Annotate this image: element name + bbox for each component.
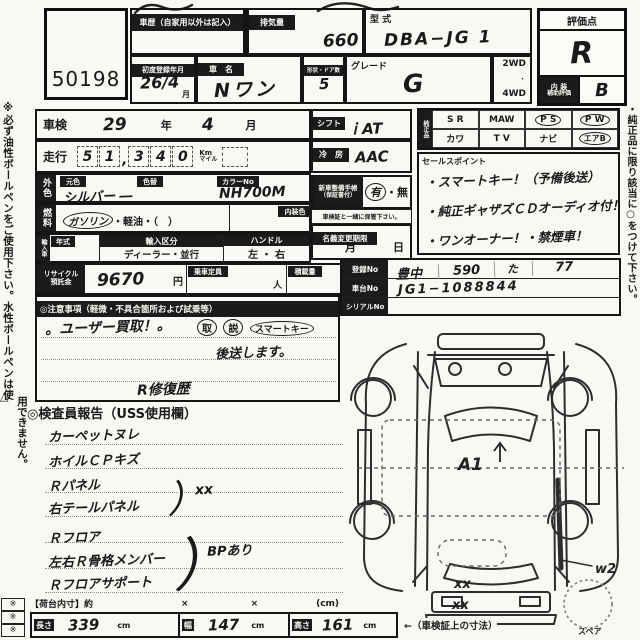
service-sep: ・ xyxy=(386,184,397,200)
year-unit: 年 xyxy=(161,117,172,133)
caution-circle-tori: 取 xyxy=(197,319,217,336)
cooling-value: AAC xyxy=(355,147,389,166)
length-value: 339 xyxy=(68,615,100,634)
import-header: 輸入車 xyxy=(37,235,50,261)
mileage-digit: 1 xyxy=(99,146,120,167)
recycle-row: リサイクル 預託金 9670 円 乗車定員 人 積載量 xyxy=(35,263,345,295)
recycle-unit: 円 xyxy=(173,273,183,288)
equip-airbag-circled: エアB xyxy=(579,132,611,145)
interior-rating-value: B xyxy=(595,79,609,100)
grade-cell: グレード G xyxy=(345,55,492,104)
chassis-no-row: 車台No JG1−1088844 xyxy=(342,279,619,298)
sales-point-3: ・ワンオーナー！・禁煙車！ xyxy=(425,225,588,250)
report-item-3: Ｒパネル xyxy=(48,474,101,495)
caution-circles: 取 説 スマートキー xyxy=(197,319,314,336)
cooling-label: 冷 房 xyxy=(313,148,349,162)
car-name-value: Nワン xyxy=(214,74,278,103)
mileage-digit: 0 xyxy=(172,146,193,167)
spare-label: スペア xyxy=(578,626,601,637)
grade-value: G xyxy=(403,69,425,99)
interior-color-label: 内装色 xyxy=(278,206,312,217)
service-book-label: 新車整備手帳 （保証書付） xyxy=(313,177,363,207)
corner-mark-box: ※ xyxy=(1,611,25,624)
shaken-label: 車検 xyxy=(43,116,67,133)
caution-repair-note: R修復歴 xyxy=(137,378,190,400)
sales-points-box: セールスポイント ・スマートキー！（予備後送） ・純正ギャザズＣＤオーディオ付！… xyxy=(417,152,620,255)
model-code-cell: 型 式 DBA−JG 1 xyxy=(364,8,532,55)
doors-label: 形状・ドア数 xyxy=(304,65,343,76)
rating-value-area: R xyxy=(540,31,624,75)
lot-number-box: 50198 xyxy=(44,8,128,100)
import-class-label: 輸入区分 xyxy=(100,235,223,247)
chassis-no-label: 車台No xyxy=(342,279,388,297)
fuel-options: ガソリン・軽油・（ ） xyxy=(63,212,178,229)
shaken-month: 4 xyxy=(201,114,214,134)
equip-ps-circled: P S xyxy=(535,114,561,126)
cooling-cell: 冷 房 AAC xyxy=(311,140,412,173)
report-bracket-2: ） xyxy=(172,517,233,603)
import-row: 輸入車 年式 輸入区分 ディーラー・並行 ハンドル 左 ・ 右 xyxy=(35,233,311,263)
name-change-day: 日 xyxy=(393,239,404,255)
equip-tv: T V xyxy=(479,129,526,148)
height-label: 高さ xyxy=(292,619,312,631)
shaken-row: 車検 29 年 4 月 xyxy=(35,109,311,140)
car-name-label: 車 名 xyxy=(198,63,244,76)
reg-class: 590 xyxy=(438,262,481,278)
interior-rating-row: 内 装 補助評価 B xyxy=(540,75,624,103)
corner-mark-boxes: ※ ※ ※ xyxy=(1,598,25,637)
caution-line2: 後送します。 xyxy=(215,341,292,363)
length-box: 長さ 339 cm xyxy=(30,612,180,638)
history-label: 車歴（自家用以外は記入） xyxy=(132,14,243,31)
equip-kawa: カワ xyxy=(432,129,479,148)
diagram-mark-rear-bumper: xx xyxy=(451,598,469,613)
cargo-dims-label: 【荷台内寸】約 xyxy=(30,597,93,610)
cargo-dims-row: 【荷台内寸】約 × × (cm) xyxy=(30,596,339,611)
month-unit: 月 xyxy=(246,117,257,133)
right-note: ・純正品に限り該当に○をつけて下さい。 xyxy=(623,104,638,354)
drive-dot: ・ xyxy=(519,76,526,83)
fuel-row: 燃料 ガソリン・軽油・（ ） 内装色 xyxy=(35,203,311,233)
width-label: 幅 xyxy=(182,619,194,631)
recycle-value-cell: 9670 円 xyxy=(85,265,187,293)
rating-label: 評価点 xyxy=(540,11,624,31)
displacement-label: 排気量 xyxy=(249,15,295,30)
fuel-header: 燃料 xyxy=(37,205,56,231)
report-bracket-2-note: BPあり xyxy=(207,539,253,560)
load-label: 積載量 xyxy=(288,266,322,277)
left-note-line1: ※必ず油性ボールペンをご使用下さい。水性ボールペンは使 xyxy=(1,102,16,422)
reg-kana: た xyxy=(494,260,519,277)
corner-mark-box: ※ xyxy=(1,598,25,611)
serial-no-value xyxy=(388,298,619,315)
shift-label: シフト xyxy=(313,117,345,130)
cautions-box: ◎注意事項（軽微・不具合箇所および試乗等） 。ユーザー買取！。 取 説 スマート… xyxy=(35,295,340,402)
interior-color-cell: 内装色 xyxy=(229,205,313,231)
diagram-mark-side: w2 xyxy=(595,562,616,577)
auction-sheet: ※必ず油性ボールペンをご使用下さい。水性ボールペンは使 用できません。 △ ※ … xyxy=(0,0,640,640)
serial-no-row: シリアルNo xyxy=(342,298,619,315)
capacity-cell: 乗車定員 人 xyxy=(187,265,287,293)
ext-color-header: 外色 xyxy=(37,175,56,201)
width-value: 147 xyxy=(208,615,240,634)
vehicle-diagram: A1 xx xx w2 xyxy=(342,328,640,638)
equip-pw-circled: P W xyxy=(580,114,610,126)
mileage-units: Km マイル xyxy=(199,150,217,163)
displacement-value: 660 xyxy=(322,30,358,51)
recycle-value: 9670 xyxy=(97,269,145,291)
rating-value: R xyxy=(570,35,594,71)
equip-navi: ナビ xyxy=(525,129,572,148)
recycle-label: リサイクル 預託金 xyxy=(37,265,85,293)
caution-circle-smartkey: スマートキー xyxy=(250,321,314,336)
width-unit: cm xyxy=(251,621,264,630)
doors-value: 5 xyxy=(319,75,330,93)
times-2: × xyxy=(251,599,259,609)
report-item-4: 右テールパネル xyxy=(48,495,140,517)
registration-block: 登録No 豊中 590 た 77 車台No JG1−1088844 シリアルNo xyxy=(340,258,621,316)
handle-cell: ハンドル 左 ・ 右 xyxy=(224,235,309,261)
first-reg-cell: 初度登録年月 26/4 月 xyxy=(130,55,196,104)
equip-pw-cell: P W xyxy=(572,110,619,129)
height-box: 高さ 161 cm xyxy=(290,612,398,638)
rating-box: 評価点 R 内 装 補助評価 B xyxy=(537,8,627,106)
cert-dims-note: ←（車検証上の寸法） xyxy=(404,618,497,632)
caution-line1: 。ユーザー買取！。 xyxy=(45,315,171,339)
drive-4wd: 4WD xyxy=(502,90,526,99)
mileage-comma: , xyxy=(122,151,128,167)
equip-maw: MAW xyxy=(479,110,526,129)
times-1: × xyxy=(181,599,189,609)
diagram-mark-rear-panel: xx xyxy=(453,577,471,592)
base-color-label: 元色 xyxy=(60,176,86,187)
height-unit: cm xyxy=(363,621,376,630)
mileage-digit: 5 xyxy=(77,146,98,167)
report-item-2: ホイルＣＰキズ xyxy=(48,448,140,470)
sales-point-1: ・スマートキー！（予備後送） xyxy=(425,166,600,191)
ext-color-row: 外色 元色 色替 カラーNo シルバー ― NH700M xyxy=(35,173,311,203)
import-class-cell: 輸入区分 ディーラー・並行 xyxy=(100,235,224,261)
report-item-7: Ｒフロアサポート xyxy=(48,571,153,594)
drive-2wd: 2WD xyxy=(502,60,526,69)
equip-airbag-cell: エアB xyxy=(572,129,619,148)
mileage-digit: 3 xyxy=(128,146,149,167)
report-item-5: Ｒフロア xyxy=(48,526,101,547)
mileage-digit: 4 xyxy=(150,146,171,167)
displacement-cell: 排気量 660 xyxy=(247,8,364,55)
model-year-cell: 年式 xyxy=(50,235,100,261)
first-reg-unit: 月 xyxy=(182,89,190,100)
model-code-value: DBA−JG 1 xyxy=(384,27,493,51)
mileage-row: 走行 5 1 , 3 4 0 Km マイル xyxy=(35,140,311,173)
color-no-value: NH700M xyxy=(219,184,286,202)
equipment-grid: 純正品 S R MAW P S P W カワ T V ナビ エアB xyxy=(417,108,620,150)
sales-points-label: セールスポイント xyxy=(419,154,618,167)
color-change-label: 色替 xyxy=(137,176,163,187)
length-unit: cm xyxy=(117,621,130,630)
capacity-label: 乗車定員 xyxy=(188,266,228,277)
service-book-cell: 新車整備手帳 （保証書付） 有・無 xyxy=(311,175,412,209)
model-year-label: 年式 xyxy=(51,236,75,247)
report-bracket-1-note: xx xyxy=(195,482,214,499)
name-change-box: 名義変更期限 月 日 xyxy=(311,224,412,260)
corner-mark-box: ※ xyxy=(1,624,25,637)
handle-label: ハンドル xyxy=(224,235,309,246)
lot-number: 50198 xyxy=(52,67,121,91)
car-name-cell: 車 名 Nワン xyxy=(196,55,302,104)
reg-no-row: 登録No 豊中 590 た 77 xyxy=(342,260,619,279)
equip-ps-cell: P S xyxy=(525,110,572,129)
shift-cell: シフト ｉAT xyxy=(311,109,412,140)
cm-note: (cm) xyxy=(316,599,339,609)
equip-sr: S R xyxy=(432,110,479,129)
mile-check-box xyxy=(222,147,248,167)
fuel-gasoline-circled: ガソリン xyxy=(63,211,114,230)
fuel-rest: ・軽油・（ ） xyxy=(113,217,178,228)
interior-rating-label: 内 装 補助評価 xyxy=(540,77,578,103)
serial-no-label: シリアルNo xyxy=(342,298,388,315)
shift-value: ｉAT xyxy=(347,117,383,139)
fold-triangle: △ xyxy=(0,390,8,403)
drive-cell: 2WD ・ 4WD xyxy=(492,55,532,104)
unit-mile: マイル xyxy=(199,157,217,163)
sales-point-2: ・純正ギャザズＣＤオーディオ付！ xyxy=(425,195,625,221)
interior-rating-value-cell: B xyxy=(578,77,624,103)
height-value: 161 xyxy=(322,615,354,634)
mileage-label: 走行 xyxy=(43,148,67,165)
import-class-value: ディーラー・並行 xyxy=(100,247,223,261)
vehicle-dims-row: 長さ 339 cm 幅 147 cm 高さ 161 cm ←（車検証上の寸法） xyxy=(30,612,497,638)
reg-no-label: 登録No xyxy=(342,260,388,278)
cautions-label: ◎注意事項（軽微・不具合箇所および試乗等） xyxy=(37,301,338,317)
load-cell: 積載量 xyxy=(287,265,343,293)
width-box: 幅 147 cm xyxy=(180,612,290,638)
reg-area: 豊中 xyxy=(396,262,423,282)
first-reg-value: 26/4 xyxy=(140,72,180,92)
equipment-header: 純正品 xyxy=(419,110,432,148)
model-code-label: 型 式 xyxy=(366,10,530,25)
diagram-mark-roof: A1 xyxy=(456,455,483,475)
history-cell: 車歴（自家用以外は記入） xyxy=(130,8,247,55)
handle-value: 左 ・ 右 xyxy=(224,246,309,261)
reg-num: 77 xyxy=(532,259,574,275)
length-label: 長さ xyxy=(34,619,54,631)
caution-circle-setsu: 説 xyxy=(223,319,243,336)
shaken-year: 29 xyxy=(103,114,127,135)
service-book-value: 有・無 xyxy=(363,177,410,207)
report-item-6: 左右Ｒ骨格メンバー xyxy=(48,548,166,571)
report-item-1: カーペットヌレ xyxy=(48,423,140,445)
service-note-strip: 車検証と一緒に保管下さい。 xyxy=(311,209,412,224)
service-yes-circled: 有 xyxy=(365,183,387,202)
doors-cell: 形状・ドア数 5 xyxy=(302,55,345,104)
service-no: 無 xyxy=(397,184,408,200)
capacity-unit: 人 xyxy=(273,278,282,291)
name-change-month: 月 xyxy=(345,239,356,255)
inspector-report-area: カーペットヌレ ホイルＣＰキズ Ｒパネル 右テールパネル ） xx Ｒフロア 左… xyxy=(45,420,345,600)
